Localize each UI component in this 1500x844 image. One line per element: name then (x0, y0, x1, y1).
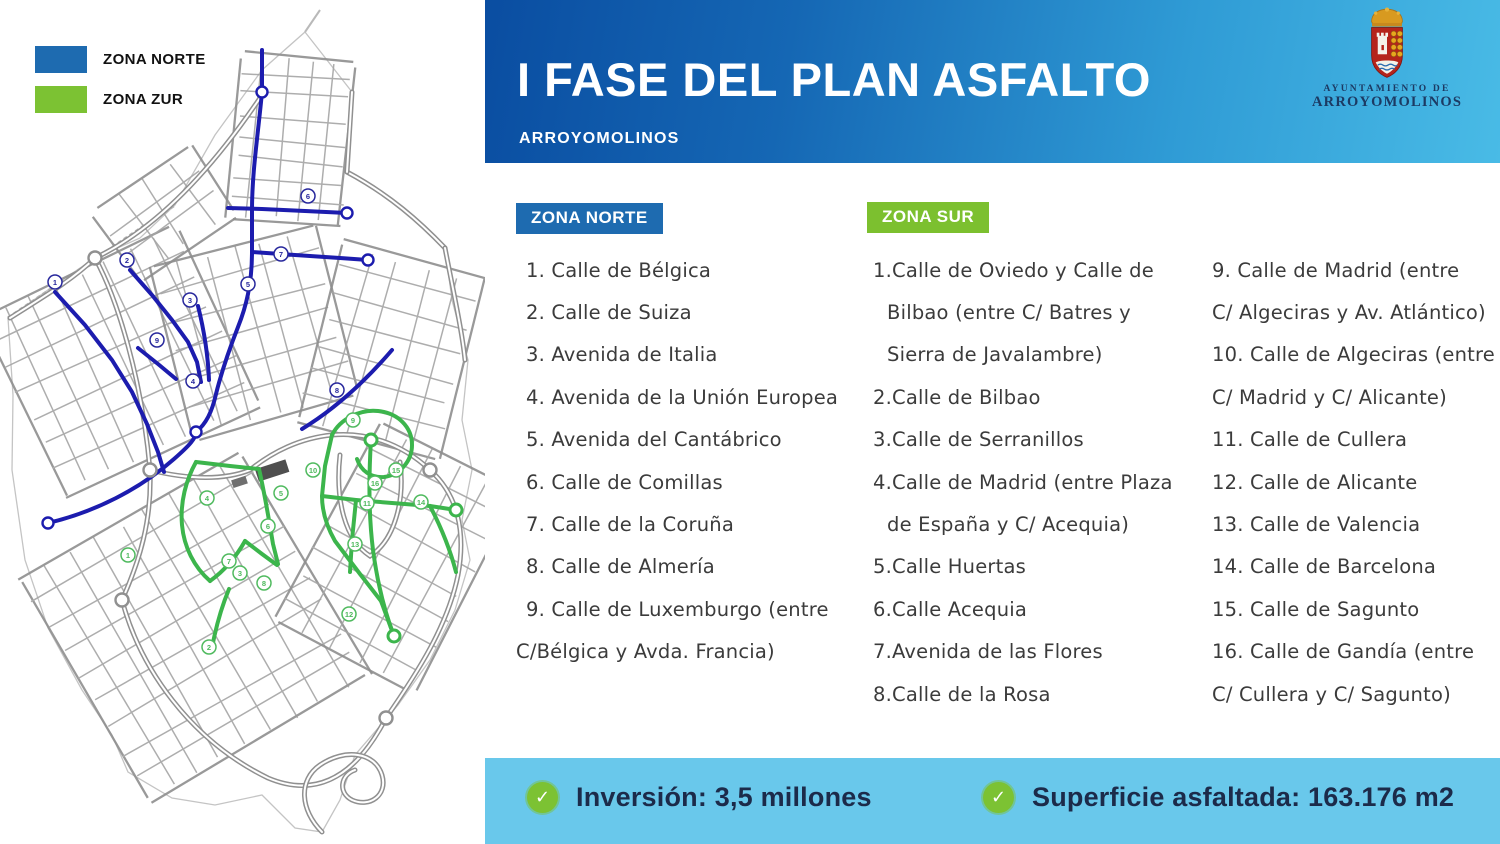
map-marker-south: 5 (274, 486, 288, 500)
street-item: 4. Avenida de la Unión Europea (516, 376, 861, 418)
street-item: 7.Avenida de las Flores (873, 631, 1203, 673)
map-marker-south-number: 10 (309, 466, 317, 475)
street-item-continuation: Bilbao (entre C/ Batres y (873, 291, 1203, 333)
city-map: 12345678912345678910111213141516 (0, 0, 485, 844)
street-grid (18, 449, 373, 804)
map-marker-south: 8 (257, 576, 271, 590)
map-marker-south: 10 (306, 463, 320, 477)
logo-text-line1: AYUNTAMIENTO DE (1312, 84, 1462, 94)
infographic-page: 12345678912345678910111213141516 ZONA NO… (0, 0, 1500, 844)
route-south (196, 462, 259, 469)
roundabout-south (388, 630, 400, 642)
logo-text-line2: ARROYOMOLINOS (1312, 94, 1462, 111)
street-item: 7. Calle de la Coruña (516, 503, 861, 545)
map-marker-north: 3 (183, 293, 197, 307)
street-item: 8.Calle de la Rosa (873, 673, 1203, 715)
street-item: 9. Calle de Luxemburgo (entre (516, 588, 861, 630)
map-marker-south: 16 (368, 476, 382, 490)
map-marker-south-number: 11 (363, 499, 371, 508)
street-line-minor (331, 292, 467, 330)
header-banner: I FASE DEL PLAN ASFALTO ARROYOMOLINOS (485, 0, 1500, 163)
map-marker-south: 13 (348, 537, 362, 551)
map-marker-north-number: 1 (53, 278, 57, 287)
check-icon: ✓ (983, 782, 1014, 813)
map-marker-south-number: 13 (351, 540, 359, 549)
map-marker-north: 2 (120, 253, 134, 267)
map-marker-south-number: 6 (266, 522, 270, 531)
street-line-minor (278, 622, 406, 690)
street-line-minor (123, 631, 341, 759)
south-color-swatch (35, 86, 87, 113)
street-item: 1.Calle de Oviedo y Calle de (873, 249, 1203, 291)
street-item: 5. Avenida del Cantábrico (516, 419, 861, 461)
roundabout-north (363, 255, 374, 266)
street-line-minor (70, 552, 198, 773)
legend-row-south: ZONA ZUR (35, 86, 206, 113)
main-road-casing (122, 600, 386, 786)
investment-text: Inversión: 3,5 millones (576, 782, 872, 813)
map-marker-south: 1 (121, 548, 135, 562)
investment-stat: ✓ Inversión: 3,5 millones (527, 782, 872, 813)
street-item: 5.Calle Huertas (873, 546, 1203, 588)
map-marker-south-number: 3 (238, 569, 242, 578)
street-item: 9. Calle de Madrid (entre (1212, 249, 1500, 291)
roundabout-south (365, 434, 377, 446)
roundabout-north (257, 87, 268, 98)
map-marker-south: 6 (261, 519, 275, 533)
map-marker-south-number: 1 (126, 551, 130, 560)
route-north (252, 252, 368, 260)
street-line-minor (383, 270, 431, 443)
street-line-minor (411, 278, 458, 450)
north-color-swatch (35, 46, 87, 73)
footer-stats-bar: ✓ Inversión: 3,5 millones ✓ Superficie a… (485, 758, 1500, 844)
roundabout-south (450, 504, 462, 516)
street-item: 3.Calle de Serranillos (873, 419, 1203, 461)
street-line-minor (232, 195, 344, 206)
street-item: 10. Calle de Algeciras (entre (1212, 334, 1500, 376)
street-line-minor (142, 508, 271, 730)
street-item: 3. Avenida de Italia (516, 334, 861, 376)
street-item: 11. Calle de Cullera (1212, 419, 1500, 461)
street-item: 1. Calle de Bélgica (516, 249, 861, 291)
street-item-continuation: C/Bélgica y Avda. Francia) (516, 631, 861, 673)
map-marker-north: 8 (330, 383, 344, 397)
map-marker-north-number: 7 (279, 250, 283, 259)
map-marker-south-number: 14 (417, 498, 426, 507)
roundabout (424, 464, 437, 477)
city-hall-logo: AYUNTAMIENTO DE ARROYOMOLINOS (1312, 6, 1462, 136)
map-marker-north: 9 (150, 333, 164, 347)
map-marker-south-number: 16 (371, 479, 379, 488)
main-road-casing (250, 435, 332, 470)
map-marker-south: 2 (202, 640, 216, 654)
surface-stat: ✓ Superficie asfaltada: 163.176 m2 (983, 782, 1454, 813)
map-marker-south: 9 (346, 413, 360, 427)
street-line-minor (275, 58, 290, 216)
zona-norte-street-list: 1. Calle de Bélgica2. Calle de Suiza3. A… (516, 249, 861, 673)
main-road-core (122, 600, 386, 786)
map-marker-south: 12 (342, 607, 356, 621)
map-marker-south: 4 (200, 491, 214, 505)
map-marker-north: 6 (301, 189, 315, 203)
main-road-core (250, 435, 332, 470)
street-item: 8. Calle de Almería (516, 546, 861, 588)
map-marker-south: 14 (414, 495, 428, 509)
page-title: I FASE DEL PLAN ASFALTO (517, 52, 1151, 107)
roundabout-north (43, 518, 54, 529)
street-line-minor (347, 261, 396, 434)
map-marker-south: 7 (222, 554, 236, 568)
zona-sur-heading: ZONA SUR (867, 202, 989, 233)
map-marker-north-number: 5 (246, 280, 250, 289)
street-line-minor (109, 171, 201, 236)
map-marker-south-number: 12 (345, 610, 353, 619)
street-line-minor (233, 217, 340, 229)
street-item: 6. Calle de Comillas (516, 461, 861, 503)
route-north (48, 432, 196, 523)
roundabout-north (342, 208, 353, 219)
map-marker-north-number: 9 (155, 336, 159, 345)
street-item: 2.Calle de Bilbao (873, 376, 1203, 418)
surface-text: Superficie asfaltada: 163.176 m2 (1032, 782, 1454, 813)
street-line-minor (168, 494, 298, 718)
map-marker-north: 5 (241, 277, 255, 291)
main-road-core (445, 248, 465, 360)
street-item-continuation: Sierra de Javalambre) (873, 334, 1203, 376)
map-marker-south-number: 9 (351, 416, 355, 425)
map-marker-north: 7 (274, 247, 288, 261)
roundabout (144, 464, 157, 477)
zona-norte-heading: ZONA NORTE (516, 203, 663, 234)
street-item-continuation: C/ Madrid y C/ Alicante) (1212, 376, 1500, 418)
street-item: 2. Calle de Suiza (516, 291, 861, 333)
check-icon: ✓ (527, 782, 558, 813)
map-legend: ZONA NORTE ZONA ZUR (35, 46, 206, 113)
map-marker-north-number: 8 (335, 386, 339, 395)
road-stub (305, 10, 320, 32)
map-marker-north-number: 2 (125, 256, 129, 265)
map-marker-south: 3 (233, 566, 247, 580)
map-marker-north: 4 (186, 374, 200, 388)
street-item-continuation: C/ Cullera y C/ Sagunto) (1212, 673, 1500, 715)
street-item: 16. Calle de Gandía (entre (1212, 631, 1500, 673)
legend-north-label: ZONA NORTE (103, 51, 206, 68)
street-item: 15. Calle de Sagunto (1212, 588, 1500, 630)
map-marker-south: 11 (360, 496, 374, 510)
zona-sur-street-list-col1: 1.Calle de Oviedo y Calle deBilbao (entr… (873, 249, 1203, 715)
map-marker-south-number: 8 (262, 579, 266, 588)
street-item-continuation: de España y C/ Acequia) (873, 503, 1203, 545)
street-item-continuation: C/ Algeciras y Av. Atlántico) (1212, 291, 1500, 333)
map-marker-south-number: 15 (392, 466, 400, 475)
map-marker-north-number: 6 (306, 192, 310, 201)
roundabout (116, 594, 129, 607)
roundabout (89, 252, 102, 265)
street-item: 6.Calle Acequia (873, 588, 1203, 630)
map-marker-north: 1 (48, 275, 62, 289)
street-item: 4.Calle de Madrid (entre Plaza (873, 461, 1203, 503)
zona-sur-street-list-col2: 9. Calle de Madrid (entreC/ Algeciras y … (1212, 249, 1500, 715)
street-item: 14. Calle de Barcelona (1212, 546, 1500, 588)
main-road-casing (347, 172, 445, 248)
building-footprint (231, 476, 248, 488)
page-subtitle: ARROYOMOLINOS (519, 130, 680, 148)
map-marker-south-number: 2 (207, 643, 211, 652)
legend-south-label: ZONA ZUR (103, 91, 183, 108)
roundabout-north (191, 427, 202, 438)
street-grid (225, 51, 356, 229)
coat-of-arms-icon (1356, 6, 1418, 82)
roundabout (380, 712, 393, 725)
map-marker-south-number: 5 (279, 489, 283, 498)
street-item: 13. Calle de Valencia (1212, 503, 1500, 545)
map-marker-south-number: 7 (227, 557, 231, 566)
street-line-minor (437, 279, 485, 459)
map-marker-south: 15 (389, 463, 403, 477)
street-item: 12. Calle de Alicante (1212, 461, 1500, 503)
legend-row-north: ZONA NORTE (35, 46, 206, 73)
map-marker-north-number: 3 (188, 296, 192, 305)
street-line-minor (318, 64, 334, 220)
